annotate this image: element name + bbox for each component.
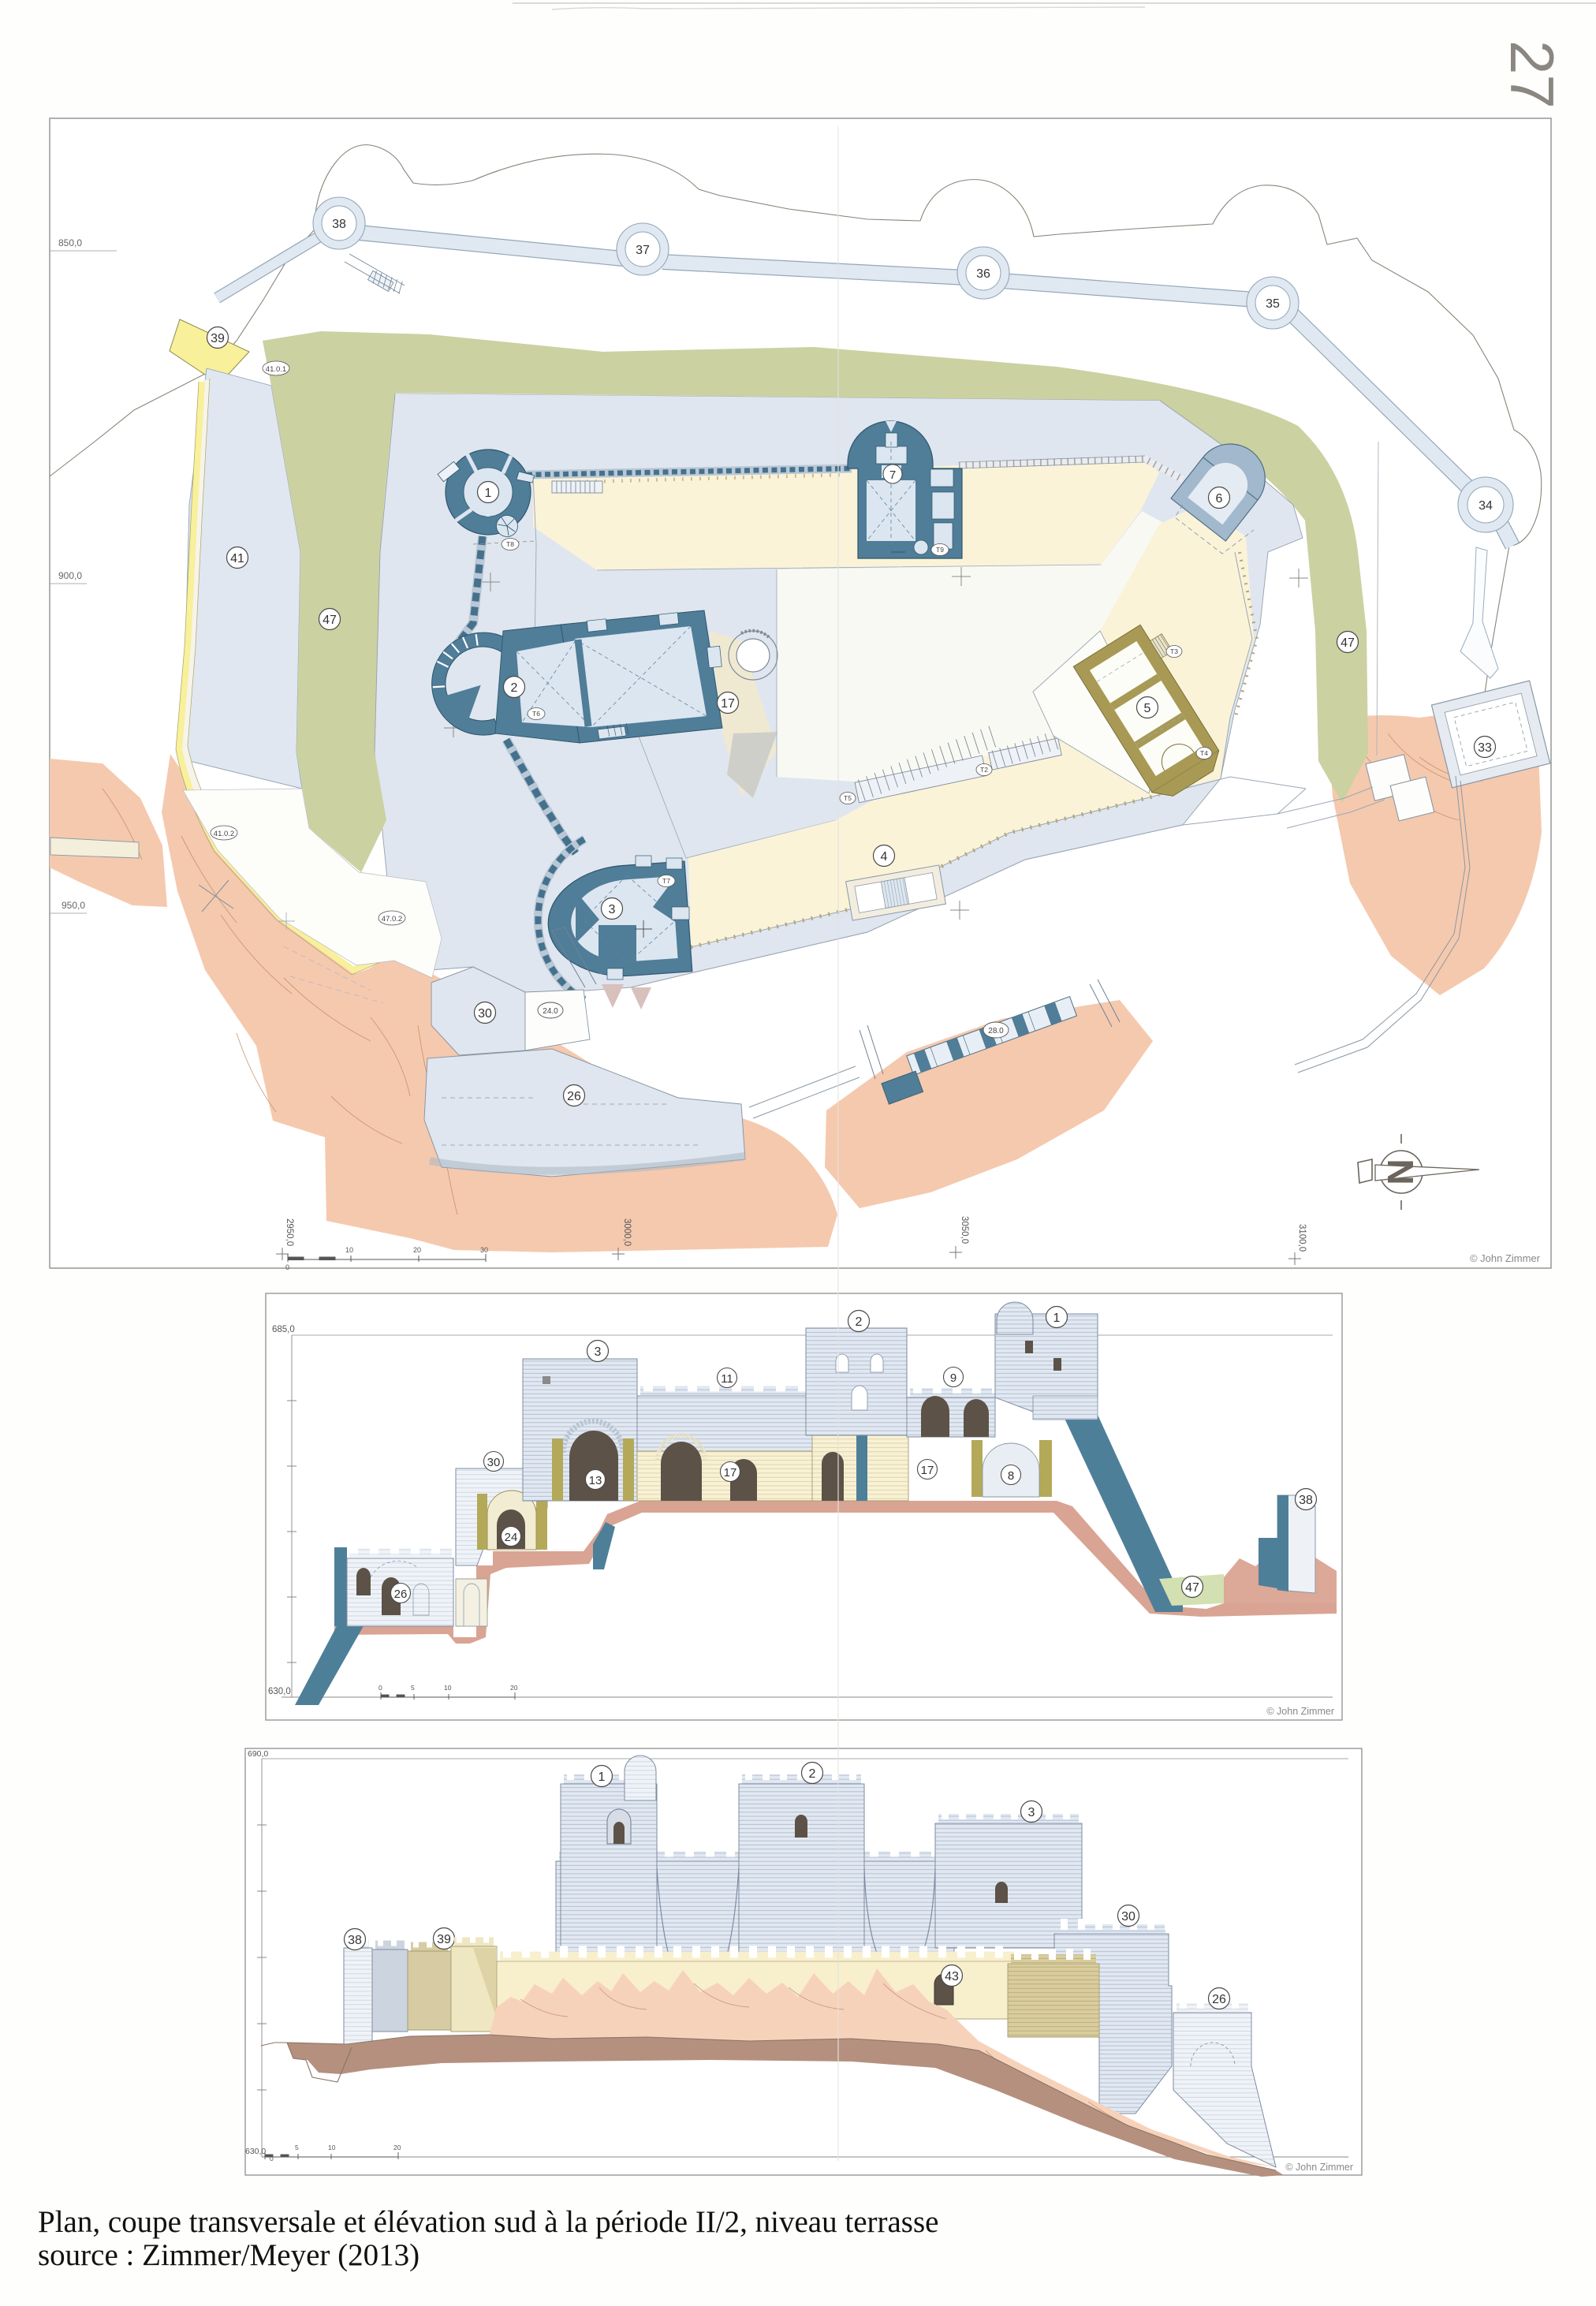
svg-text:47.0.2: 47.0.2 xyxy=(382,915,402,924)
svg-text:T4: T4 xyxy=(1200,749,1208,757)
svg-text:3: 3 xyxy=(609,903,616,916)
svg-text:35: 35 xyxy=(1266,297,1280,311)
svg-text:26: 26 xyxy=(567,1090,581,1103)
svg-text:30: 30 xyxy=(487,1456,501,1469)
svg-text:28.0: 28.0 xyxy=(988,1027,1004,1035)
svg-text:3: 3 xyxy=(1028,1806,1035,1819)
svg-text:38: 38 xyxy=(332,218,346,231)
svg-text:30: 30 xyxy=(1121,1910,1135,1924)
svg-text:7: 7 xyxy=(889,468,896,482)
svg-text:5: 5 xyxy=(295,2144,299,2151)
svg-text:20: 20 xyxy=(393,2144,401,2151)
svg-text:2950,0: 2950,0 xyxy=(285,1218,294,1246)
svg-text:37: 37 xyxy=(636,244,650,257)
svg-text:0: 0 xyxy=(270,2155,274,2162)
svg-text:1: 1 xyxy=(485,487,492,500)
svg-text:10: 10 xyxy=(328,2144,336,2151)
svg-text:0: 0 xyxy=(378,1684,382,1692)
svg-text:5: 5 xyxy=(411,1684,415,1692)
svg-text:9: 9 xyxy=(950,1371,956,1385)
svg-text:3100,0: 3100,0 xyxy=(1297,1224,1307,1252)
svg-text:2: 2 xyxy=(809,1767,816,1781)
svg-text:3: 3 xyxy=(595,1345,602,1359)
svg-text:17: 17 xyxy=(921,1464,934,1477)
svg-text:690,0: 690,0 xyxy=(248,1749,268,1759)
svg-text:30: 30 xyxy=(478,1007,492,1021)
svg-text:T8: T8 xyxy=(506,540,514,548)
svg-text:3050,0: 3050,0 xyxy=(960,1216,969,1244)
svg-text:39: 39 xyxy=(437,1933,451,1946)
svg-text:13: 13 xyxy=(589,1474,602,1487)
svg-text:10: 10 xyxy=(444,1684,452,1692)
svg-text:3000,0: 3000,0 xyxy=(622,1218,632,1246)
svg-text:10: 10 xyxy=(345,1246,353,1254)
svg-text:26: 26 xyxy=(394,1588,408,1601)
svg-text:47: 47 xyxy=(1185,1581,1199,1595)
svg-text:47: 47 xyxy=(323,614,337,627)
svg-text:T6: T6 xyxy=(532,710,540,718)
svg-text:© John Zimmer: © John Zimmer xyxy=(1285,2162,1353,2173)
svg-text:900,0: 900,0 xyxy=(58,570,82,581)
svg-text:24.0: 24.0 xyxy=(543,1007,558,1016)
svg-text:© John Zimmer: © John Zimmer xyxy=(1470,1252,1541,1264)
svg-text:34: 34 xyxy=(1479,499,1493,513)
svg-text:1: 1 xyxy=(598,1771,606,1784)
svg-text:T2: T2 xyxy=(980,766,988,774)
svg-text:N: N xyxy=(1380,1159,1421,1185)
svg-text:20: 20 xyxy=(413,1246,421,1254)
svg-text:27: 27 xyxy=(1497,40,1567,109)
svg-text:2: 2 xyxy=(511,681,518,695)
svg-text:39: 39 xyxy=(211,332,225,345)
svg-text:T9: T9 xyxy=(936,546,944,554)
svg-text:24: 24 xyxy=(505,1531,518,1544)
svg-text:41: 41 xyxy=(230,552,244,565)
svg-text:2: 2 xyxy=(856,1315,863,1329)
svg-text:5: 5 xyxy=(1144,702,1151,715)
svg-text:38: 38 xyxy=(348,1934,362,1947)
svg-text:T5: T5 xyxy=(844,794,852,802)
svg-text:20: 20 xyxy=(510,1684,518,1692)
svg-text:11: 11 xyxy=(721,1372,733,1386)
svg-text:41.0.2: 41.0.2 xyxy=(214,830,234,838)
svg-text:950,0: 950,0 xyxy=(62,900,85,911)
svg-text:4: 4 xyxy=(881,850,888,864)
svg-text:38: 38 xyxy=(1299,1494,1313,1507)
svg-text:630,0: 630,0 xyxy=(245,2147,266,2156)
svg-text:33: 33 xyxy=(1478,741,1492,755)
svg-text:6: 6 xyxy=(1216,492,1223,506)
svg-text:36: 36 xyxy=(976,267,990,281)
svg-text:17: 17 xyxy=(721,697,735,711)
svg-text:685,0: 685,0 xyxy=(272,1325,295,1334)
svg-text:Plan, coupe transversale et él: Plan, coupe transversale et élévation su… xyxy=(38,2205,938,2239)
svg-text:47: 47 xyxy=(1341,636,1355,650)
svg-text:0: 0 xyxy=(285,1263,289,1271)
svg-text:17: 17 xyxy=(724,1466,737,1479)
svg-text:T7: T7 xyxy=(662,877,670,885)
svg-text:30: 30 xyxy=(480,1246,488,1254)
svg-text:43: 43 xyxy=(945,1970,959,1983)
svg-text:26: 26 xyxy=(1212,1993,1226,2006)
svg-text:8: 8 xyxy=(1008,1469,1014,1483)
svg-text:© John Zimmer: © John Zimmer xyxy=(1266,1706,1334,1717)
svg-text:41.0.1: 41.0.1 xyxy=(266,365,286,374)
svg-text:850,0: 850,0 xyxy=(58,237,82,248)
svg-text:source : Zimmer/Meyer (2013): source : Zimmer/Meyer (2013) xyxy=(38,2238,420,2272)
svg-text:630,0: 630,0 xyxy=(268,1687,291,1696)
svg-text:1: 1 xyxy=(1053,1312,1061,1325)
svg-text:T3: T3 xyxy=(1170,647,1178,655)
